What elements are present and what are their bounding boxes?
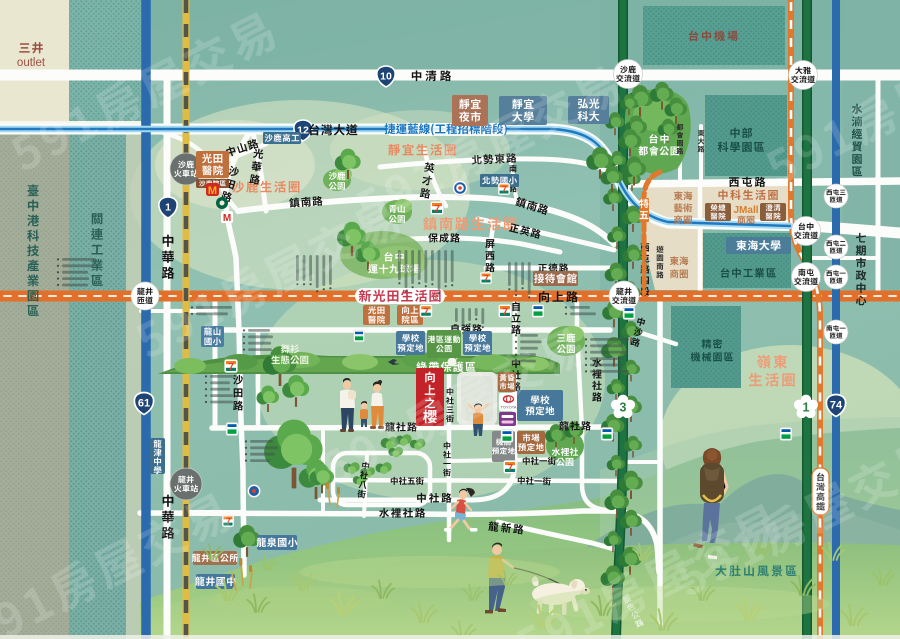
svg-text:7: 7 xyxy=(502,307,508,318)
svg-text:M: M xyxy=(223,213,231,224)
svg-text:M: M xyxy=(208,185,217,197)
svg-text:TOYOTA: TOYOTA xyxy=(500,405,516,410)
svg-text:7: 7 xyxy=(507,463,513,474)
svg-text:7: 7 xyxy=(228,362,234,373)
svg-text:JMall: JMall xyxy=(733,205,758,216)
svg-text:61: 61 xyxy=(138,398,150,410)
svg-text:7: 7 xyxy=(484,273,489,283)
svg-text:7: 7 xyxy=(502,184,507,194)
svg-text:3: 3 xyxy=(620,401,627,415)
svg-text:7: 7 xyxy=(434,204,440,215)
svg-text:10: 10 xyxy=(380,71,392,83)
svg-text:outlet: outlet xyxy=(17,57,46,69)
svg-text:1: 1 xyxy=(165,202,171,214)
svg-text:1: 1 xyxy=(803,401,810,415)
svg-text:74: 74 xyxy=(830,400,843,412)
svg-text:7: 7 xyxy=(424,307,429,318)
